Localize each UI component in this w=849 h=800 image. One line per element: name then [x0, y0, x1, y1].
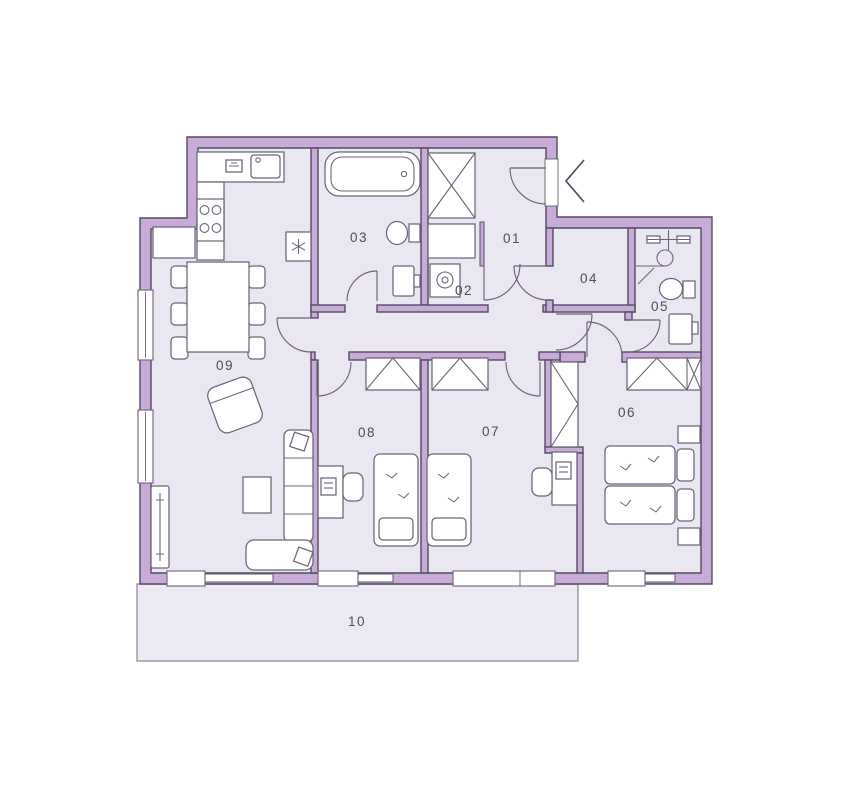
- hood-icon: [226, 160, 242, 172]
- kitchen-sink: [251, 155, 280, 178]
- floor-plan: 01 02 03 04 05 06 07 08 09 10: [0, 0, 849, 800]
- nightstand: [678, 528, 700, 545]
- entrance-opening: [545, 159, 558, 206]
- bed-single: [374, 454, 418, 546]
- cooktop-icon: [197, 199, 224, 241]
- bathtub: [325, 152, 420, 196]
- wardrobe: [428, 153, 475, 218]
- fridge-snowflake-icon: [286, 232, 311, 261]
- dining-table: [171, 262, 265, 359]
- room-label-04: 04: [580, 271, 598, 286]
- radiator: [151, 486, 169, 568]
- nightstand: [678, 426, 700, 443]
- room-label-05: 05: [651, 299, 669, 314]
- desk: [552, 452, 577, 505]
- coffee-table: [243, 477, 271, 513]
- room-label-01: 01: [503, 231, 521, 246]
- wardrobe: [432, 358, 488, 390]
- room-label-02: 02: [455, 283, 473, 298]
- wardrobe: [366, 358, 420, 390]
- wardrobe-left: [551, 362, 578, 447]
- room-label-08: 08: [358, 425, 376, 440]
- shelf: [428, 224, 475, 258]
- floor-plan-canvas: 01 02 03 04 05 06 07 08 09 10: [0, 0, 849, 800]
- room-label-09: 09: [216, 358, 234, 373]
- entrance-arrow-icon: [566, 160, 584, 202]
- room-label-03: 03: [350, 230, 368, 245]
- room-label-10: 10: [348, 614, 366, 629]
- shaft-niche: [153, 227, 195, 258]
- room-label-06: 06: [618, 405, 636, 420]
- room-label-07: 07: [482, 424, 500, 439]
- desk: [318, 466, 343, 518]
- desk-chair: [343, 473, 363, 501]
- toilet: [660, 279, 696, 300]
- wardrobe-top: [627, 358, 701, 390]
- toilet: [387, 222, 421, 245]
- bed-single: [427, 454, 471, 546]
- desk-chair: [532, 468, 552, 496]
